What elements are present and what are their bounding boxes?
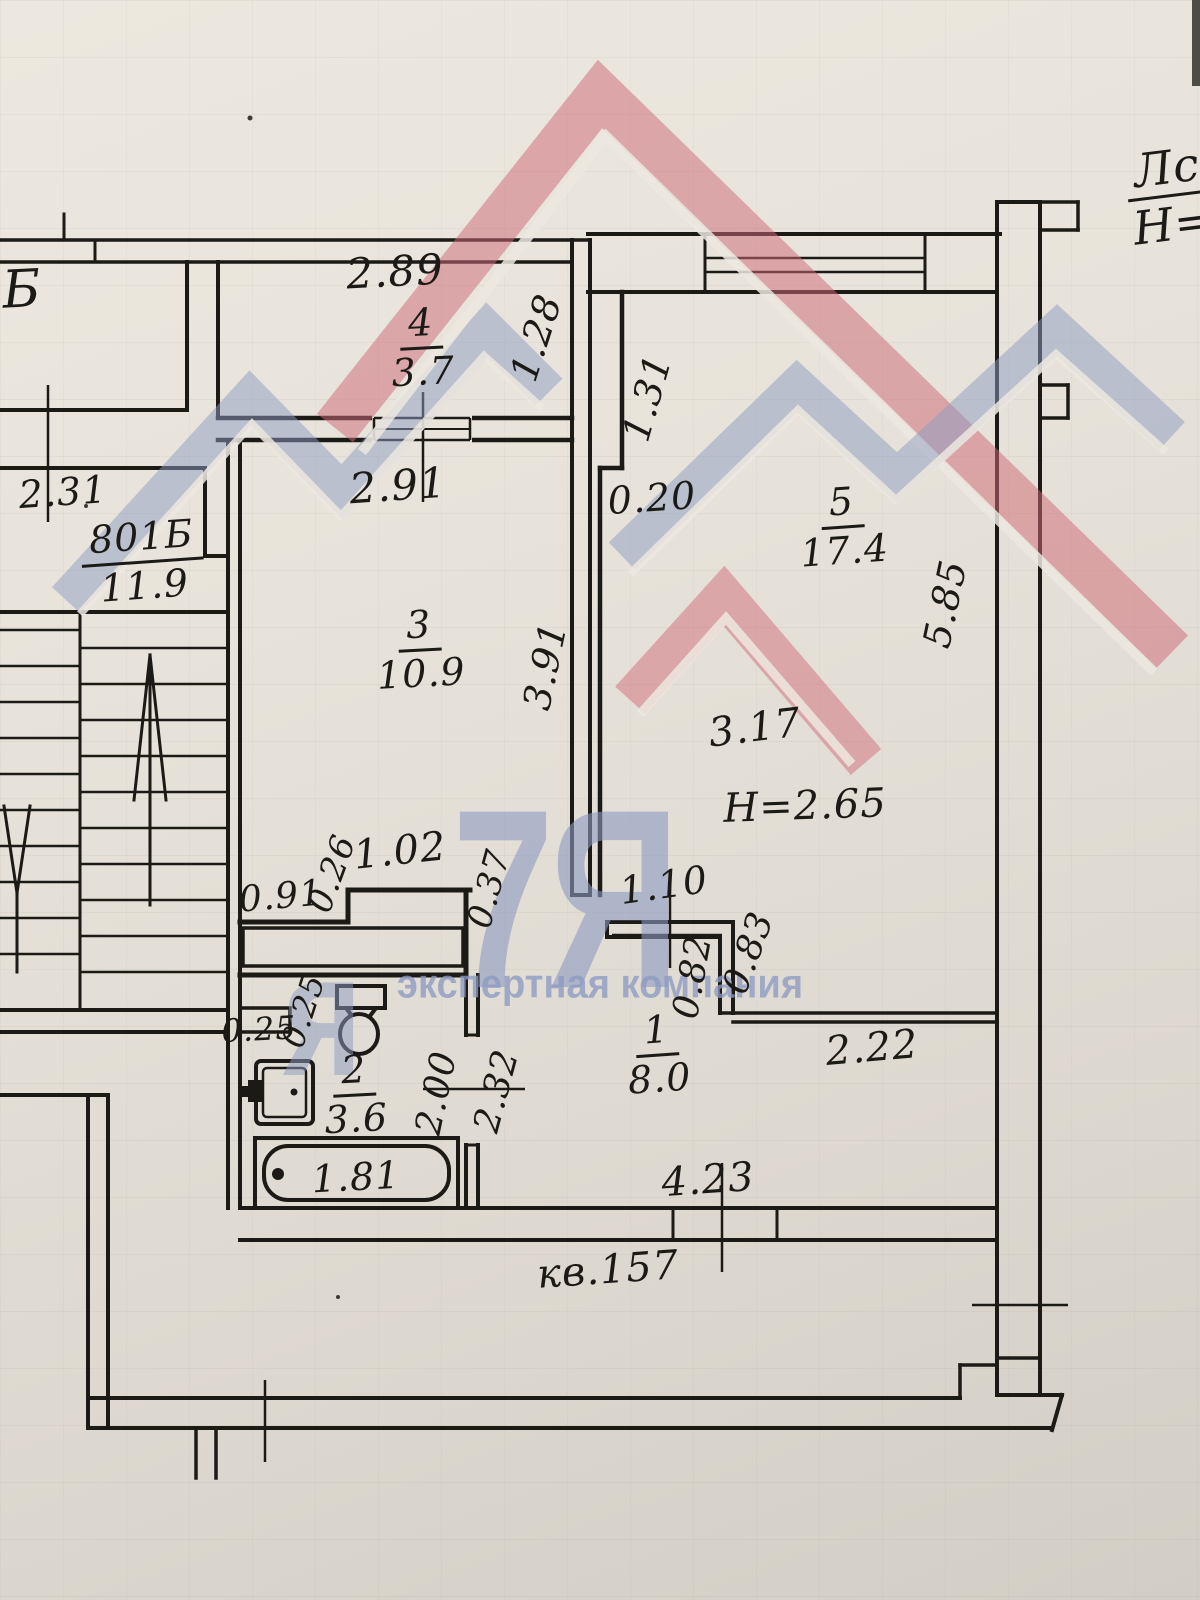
corner-note-bottom: Н= (1129, 195, 1200, 253)
ceiling-height-note: Н=2.65 (723, 782, 888, 830)
dim-stairwell-width: 2.31 (17, 470, 108, 516)
room3-number: 3 (396, 605, 442, 653)
balcony-room-fraction: 4 3.7 (388, 302, 456, 394)
hall-number: 1 (633, 1009, 679, 1058)
stairwell-unit-area: 11.9 (82, 562, 207, 610)
paper-specks (84, 116, 340, 1300)
room5-area: 17.4 (799, 528, 890, 574)
balcony-room-number: 4 (398, 303, 444, 351)
floor-plan-scan: 7Я я экспертная компания Лс Н= Б 2.31 80… (0, 0, 1200, 1600)
balcony-room-area: 3.7 (391, 351, 456, 394)
stairwell-unit-fraction: 801Б 11.9 (79, 513, 207, 610)
dim-bathtub-length: 1.81 (311, 1156, 402, 1200)
dim-hall-niche-width: 2.22 (824, 1023, 920, 1073)
bath-number: 2 (331, 1050, 377, 1098)
scan-edge-artifact (1192, 0, 1200, 86)
corner-note-top: Лс (1122, 138, 1200, 202)
staircase (0, 612, 228, 1032)
hall-fraction: 1 8.0 (623, 1009, 692, 1102)
dim-entry-wall: 4.23 (660, 1156, 756, 1204)
dim-bath-vent-b: 0.25 (221, 1011, 298, 1048)
apartment-number: кв.157 (536, 1244, 681, 1296)
dim-closet-width: 1.02 (352, 825, 449, 876)
room5-number: 5 (818, 481, 864, 530)
corner-note-fraction: Лс Н= (1122, 138, 1200, 253)
bath-area: 3.6 (324, 1098, 389, 1141)
dim-room5-jog-h: 0.20 (606, 476, 697, 522)
room3-area: 10.9 (376, 652, 467, 696)
room3-fraction: 3 10.9 (373, 603, 466, 696)
neighbor-room-label: Б (1, 262, 43, 319)
bath-fraction: 2 3.6 (321, 1049, 389, 1141)
room5-fraction: 5 17.4 (796, 480, 891, 575)
dim-room3-width: 2.91 (348, 461, 448, 512)
dim-balcony-width: 2.89 (345, 247, 445, 296)
hall-area: 8.0 (627, 1057, 693, 1101)
dim-room5-width: 3.17 (706, 701, 803, 754)
